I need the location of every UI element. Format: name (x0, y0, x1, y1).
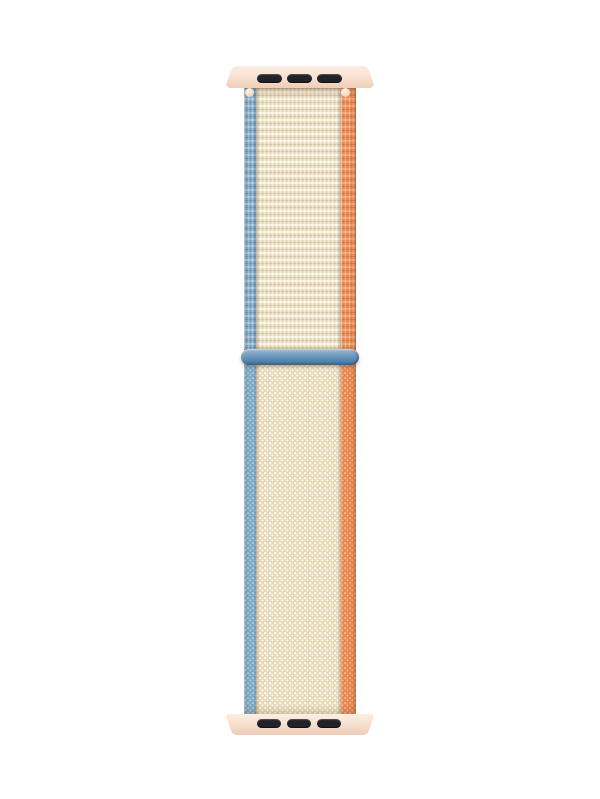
top-adapter-lug (226, 66, 374, 88)
adapter-slot (287, 719, 311, 728)
spring-bar-pin-left (245, 88, 254, 97)
strap-upper-section (244, 88, 356, 349)
bottom-adapter-lug (226, 714, 374, 735)
spring-bar-pin-right (341, 88, 350, 97)
adapter-slot (317, 74, 342, 83)
orange-edge-stripe (341, 88, 356, 349)
slider-loop-ring (241, 349, 359, 365)
adapter-slot (317, 719, 341, 728)
adapter-slot (287, 74, 312, 83)
cream-center-weave (256, 349, 341, 715)
watch-band-product-photo (0, 0, 600, 799)
blue-edge-stripe (244, 88, 256, 349)
band-strap (244, 88, 356, 715)
cream-center-weave (256, 88, 341, 349)
orange-edge-stripe (341, 349, 356, 715)
blue-edge-stripe (244, 349, 256, 715)
adapter-slot (257, 719, 281, 728)
strap-lower-section (244, 349, 356, 715)
adapter-slot (257, 74, 282, 83)
